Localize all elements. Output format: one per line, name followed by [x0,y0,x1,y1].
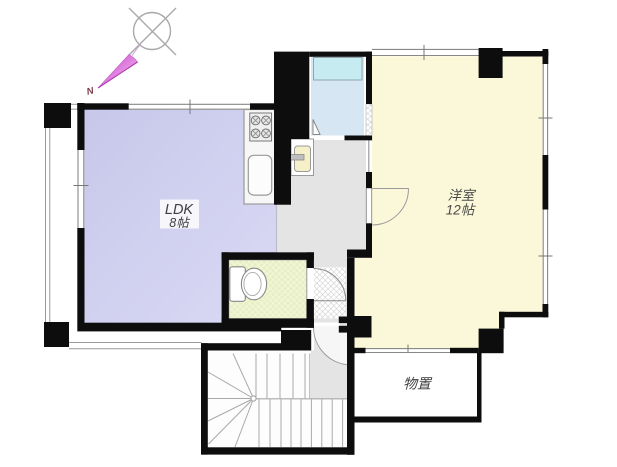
svg-text:洋室: 洋室 [448,188,477,203]
svg-text:8帖: 8帖 [169,216,190,230]
svg-text:N: N [86,85,96,98]
svg-text:12帖: 12帖 [446,203,477,218]
svg-text:物置: 物置 [403,376,433,392]
